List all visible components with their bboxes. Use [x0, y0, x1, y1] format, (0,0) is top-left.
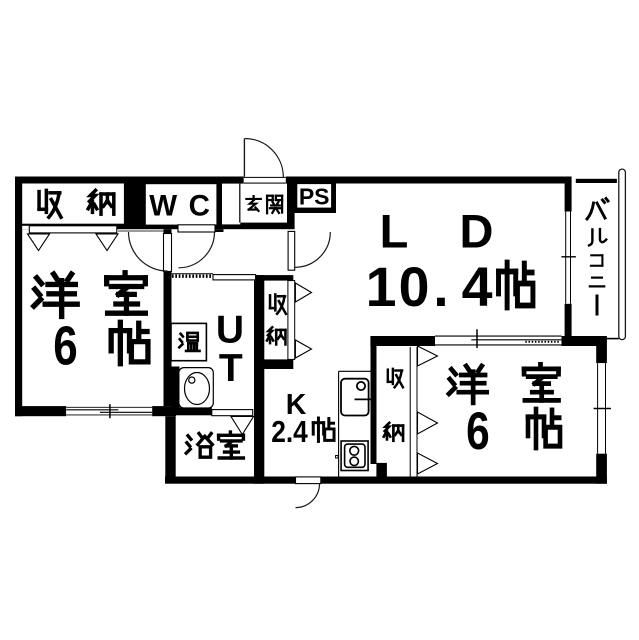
svg-text:L: L [380, 205, 409, 258]
svg-text:6: 6 [466, 403, 490, 462]
svg-text:4: 4 [462, 256, 493, 318]
svg-text:T: T [219, 347, 243, 390]
svg-text:2.4: 2.4 [271, 415, 308, 449]
svg-text:U: U [216, 309, 244, 352]
svg-text:C: C [189, 190, 210, 223]
svg-text:6: 6 [53, 315, 77, 377]
svg-text:1: 1 [366, 256, 397, 318]
svg-text:PS: PS [299, 183, 330, 209]
svg-text:0: 0 [399, 256, 430, 318]
svg-text:D: D [460, 205, 494, 258]
svg-text:.: . [433, 256, 448, 318]
svg-text:W: W [149, 190, 177, 223]
